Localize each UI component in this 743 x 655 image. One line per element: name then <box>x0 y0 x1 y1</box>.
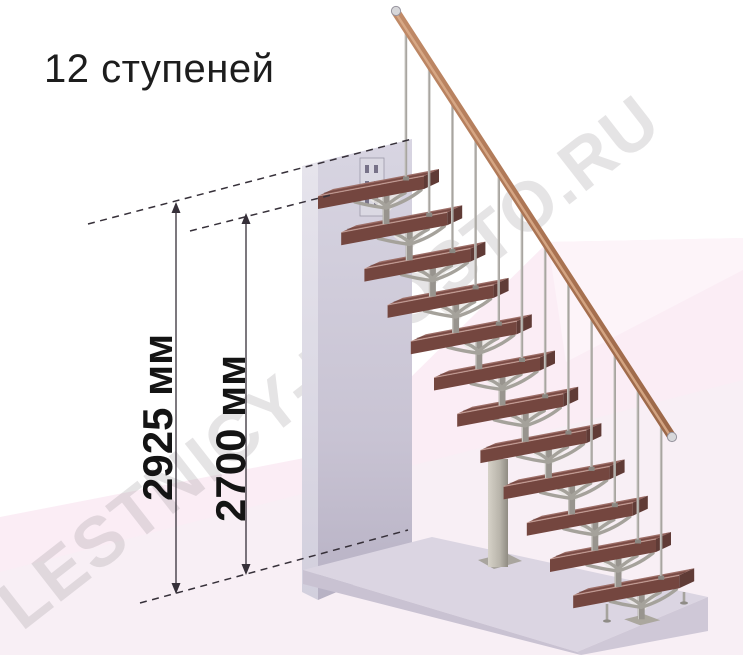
column-shaft <box>488 459 508 567</box>
baluster-bracket <box>496 322 502 326</box>
baluster-bracket <box>403 177 409 181</box>
step-leg-foot <box>680 601 688 604</box>
baluster-bracket <box>519 358 525 362</box>
wall-side-face <box>302 162 318 600</box>
baluster-bracket <box>635 540 641 544</box>
step-count-title: 12 ступеней <box>44 47 274 91</box>
staircase-diagram: LESTNICY-PROSTO.RU <box>0 0 743 655</box>
baluster-bracket <box>473 285 479 289</box>
baluster-bracket <box>426 213 432 217</box>
baluster-bracket <box>658 576 664 580</box>
baluster-bracket <box>589 467 595 471</box>
baluster-bracket <box>542 394 548 398</box>
baluster-bracket <box>565 431 571 435</box>
handrail-top-cap <box>391 6 400 15</box>
diagram-canvas: LESTNICY-PROSTO.RU <box>0 0 743 655</box>
baluster-bracket <box>612 503 618 507</box>
step-leg-foot <box>603 619 611 622</box>
dimension-label-2925: 2925 мм <box>134 334 181 501</box>
baluster-bracket <box>449 249 455 253</box>
handrail-end-cap <box>667 432 676 441</box>
dimension-label-2700: 2700 мм <box>207 355 254 522</box>
